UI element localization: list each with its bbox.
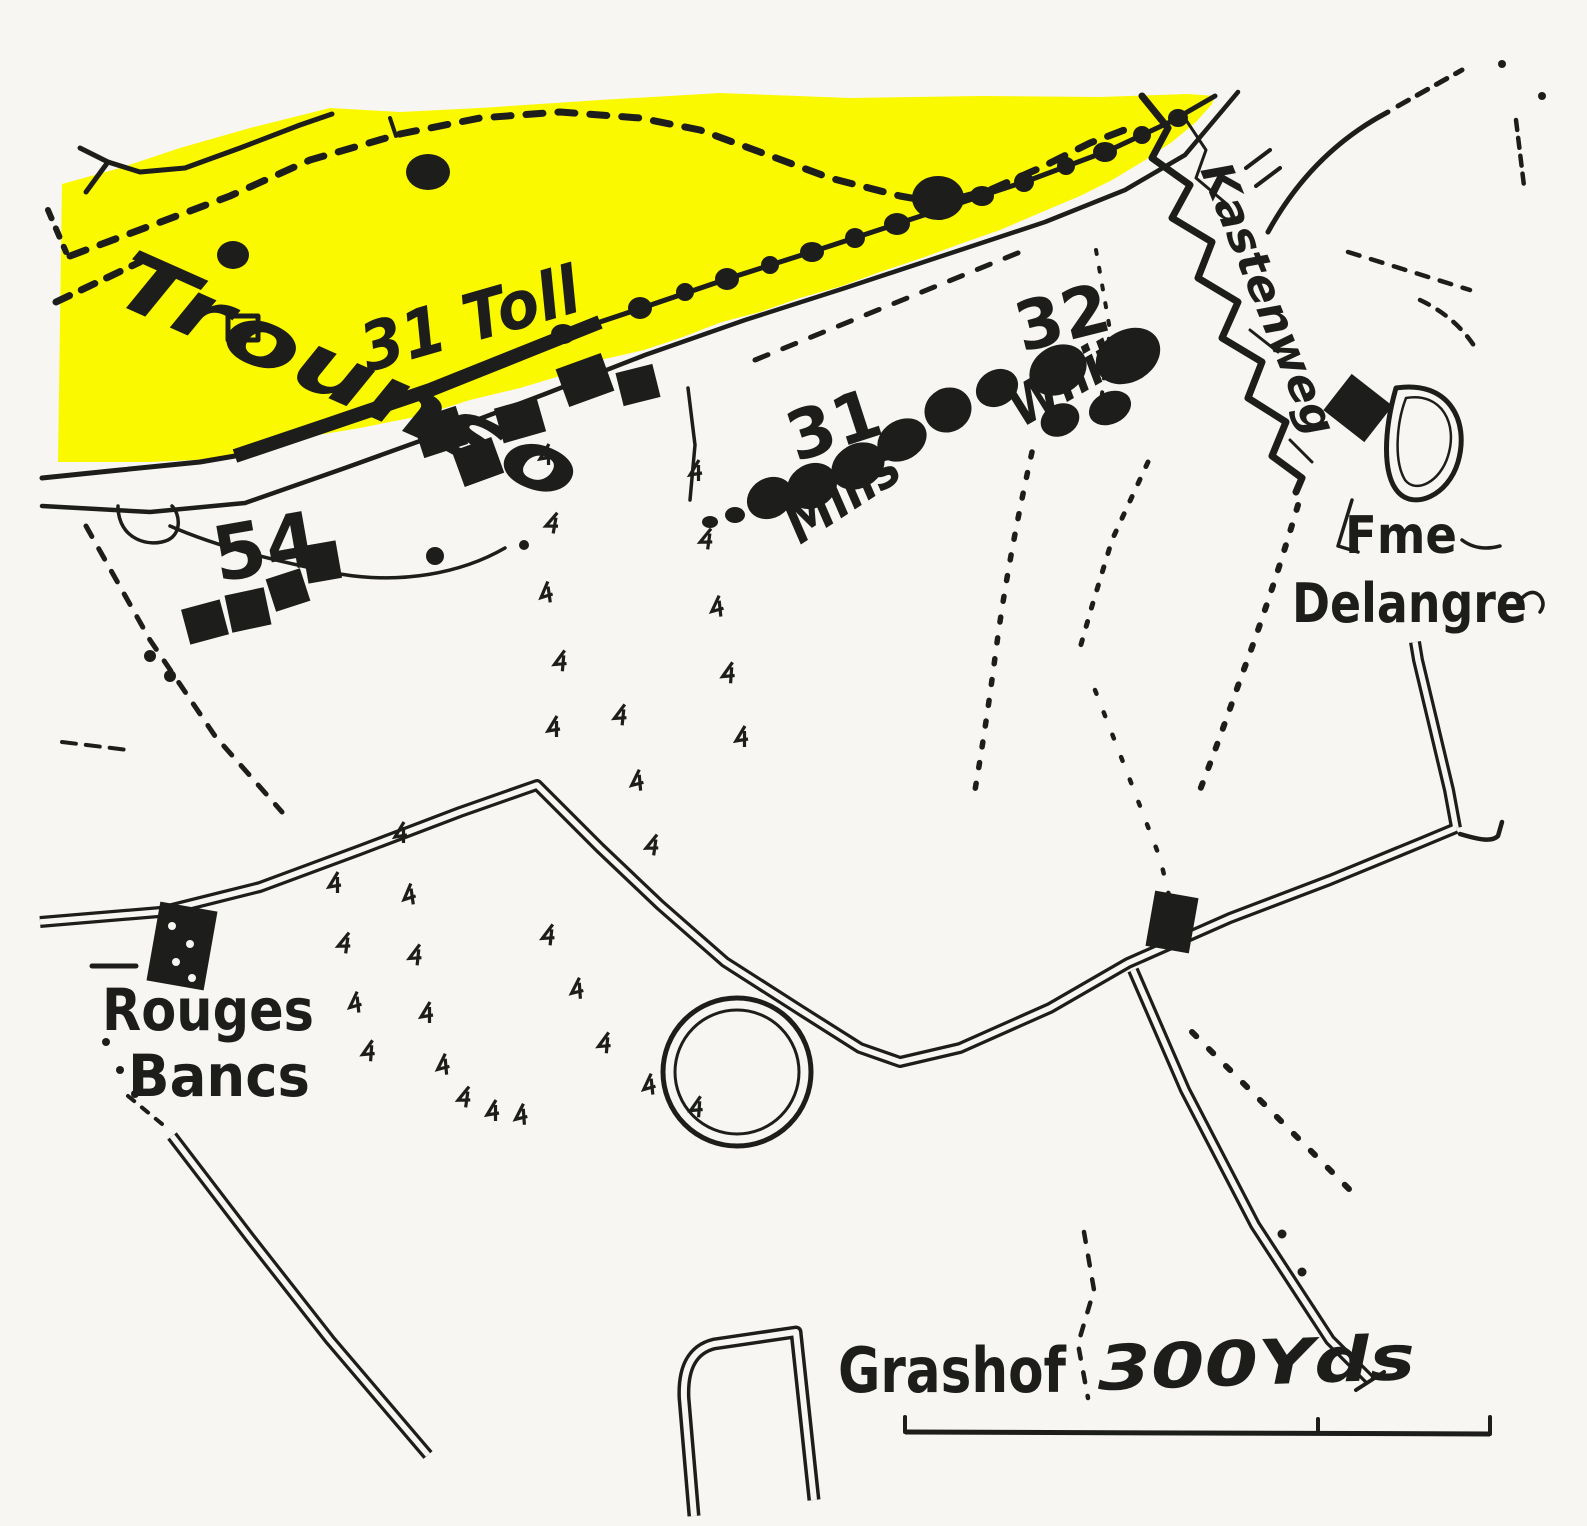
trench-map: Trounso 31 Toll 31 Mills 32 White 54 Kas…: [0, 0, 1587, 1526]
label-bancs: Bancs: [128, 1042, 310, 1110]
label-delangre: Delangre: [1292, 572, 1527, 635]
label-grashof: Grashof: [838, 1334, 1067, 1407]
map-canvas: Trounso 31 Toll 31 Mills 32 White 54 Kas…: [0, 0, 1587, 1526]
label-rouges: Rouges: [102, 976, 314, 1044]
label-fme: Fme: [1345, 506, 1457, 566]
label-54: 54: [206, 494, 326, 600]
label-scale-300yds: 300Yds: [1096, 1321, 1416, 1405]
